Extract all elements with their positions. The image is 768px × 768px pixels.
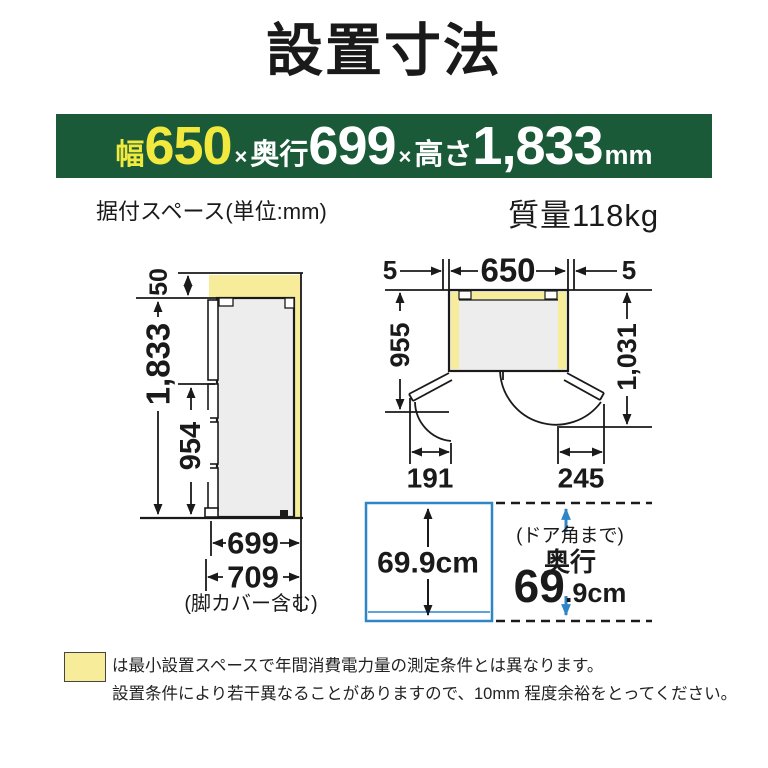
dim-depth-corner-label: 1,031 — [612, 323, 642, 391]
side-top-clearance-highlight — [209, 275, 301, 298]
footer-note-line1: は最小設置スペースで年間消費電力量の測定条件とは異なります。 — [112, 656, 603, 676]
dim-depth-open-label: 955 — [385, 322, 415, 367]
left-clearance-highlight — [451, 292, 459, 369]
clearance-legend-swatch — [64, 652, 106, 682]
front-foot — [205, 508, 218, 517]
right-clearance-highlight — [558, 292, 566, 369]
dim-top-clearance-label: 50 — [145, 268, 173, 296]
dim-door-height-label: 954 — [175, 422, 207, 470]
hinge-right — [545, 291, 557, 299]
dim-left-clearance-label: 5 — [383, 255, 397, 285]
dim-right-door-label: 245 — [558, 463, 605, 494]
door-panel-top — [208, 300, 218, 380]
dimension-diagram: 50 1,833 954 699 709 (脚カバー含む) — [0, 0, 768, 768]
depth-box-value: 69.9cm — [377, 547, 479, 580]
rear-foot — [280, 510, 288, 517]
dim-depth-with-cover-label: 709 — [227, 560, 279, 595]
hinge-left — [459, 291, 471, 299]
fridge-body-side — [217, 298, 294, 517]
dim-left-door-label: 191 — [407, 463, 454, 494]
dim-width-label: 650 — [480, 252, 535, 289]
door-corner-note: (ドア角まで) — [516, 525, 624, 547]
fridge-body-top — [449, 290, 568, 371]
dim-total-height-label: 1,833 — [140, 323, 177, 406]
left-door-swing-arc — [415, 402, 451, 441]
right-door-swing-arc — [500, 371, 601, 425]
dim-body-depth-label: 699 — [227, 526, 279, 561]
dim-right-clearance-label: 5 — [622, 255, 636, 285]
leg-cover-note: (脚カバー含む) — [184, 592, 317, 615]
footer-note-line2: 設置条件により若干異なることがありますので、10mm 程度余裕をとってください。 — [112, 684, 737, 704]
depth-diagram: 69.9cm (ドア角まで) 奥行 69.9cm — [366, 503, 652, 621]
spec-sheet: 設置寸法 幅 650 × 奥行 699 × 高さ 1,833 mm 据付スペース… — [0, 0, 768, 768]
back-clearance-highlight — [459, 292, 558, 299]
